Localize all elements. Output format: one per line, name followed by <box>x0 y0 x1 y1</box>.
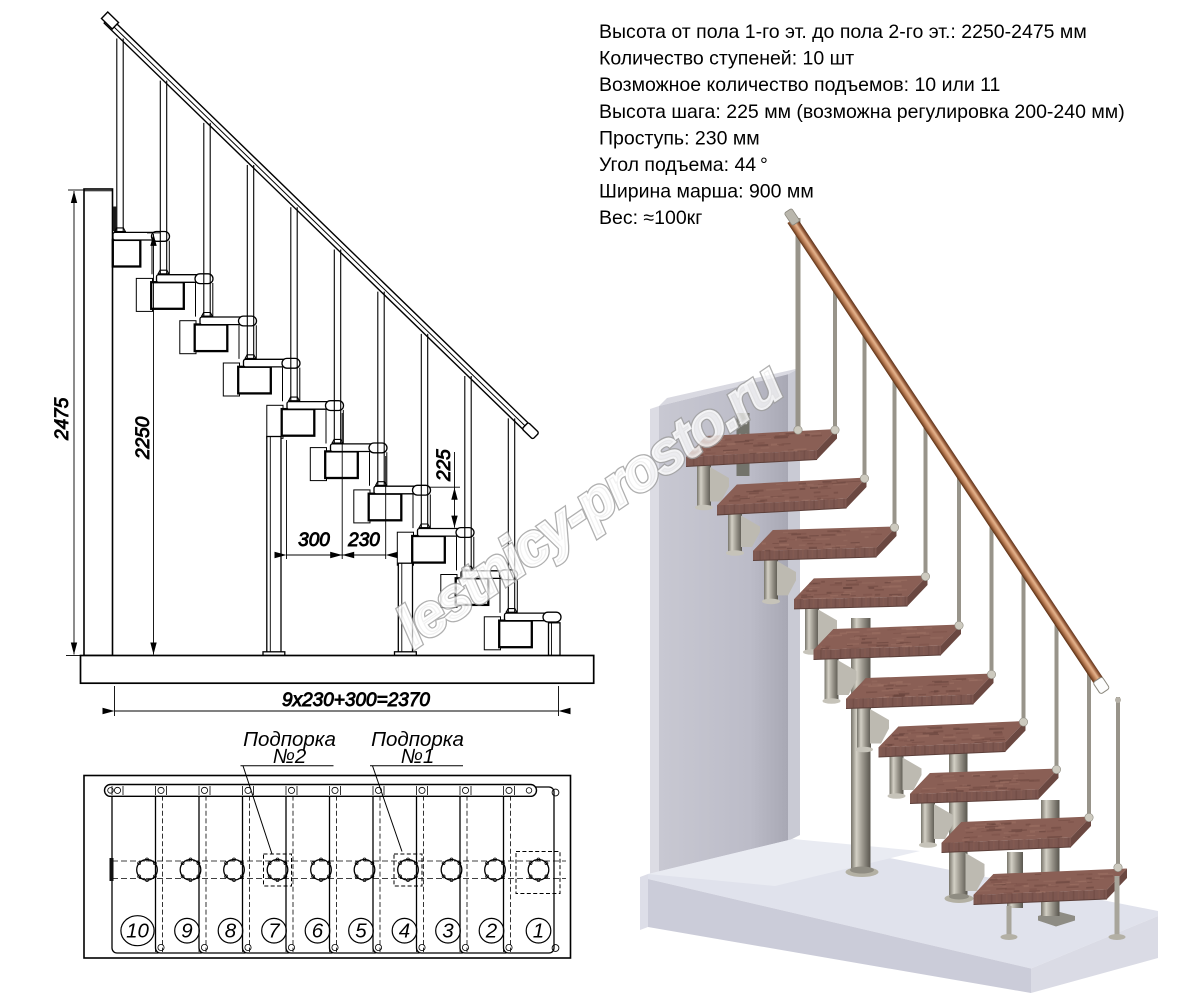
svg-text:2475: 2475 <box>52 397 73 441</box>
svg-text:1: 1 <box>533 920 544 943</box>
svg-text:3: 3 <box>442 920 454 943</box>
svg-text:225: 225 <box>434 449 455 482</box>
svg-text:Высота от пола 1-го эт. до пол: Высота от пола 1-го эт. до пола 2-го эт.… <box>599 21 1087 43</box>
svg-text:230: 230 <box>347 530 380 551</box>
svg-text:Ширина марша: 900 мм: Ширина марша: 900 мм <box>599 181 814 203</box>
svg-text:300: 300 <box>298 530 330 551</box>
svg-text:6: 6 <box>312 920 324 943</box>
svg-text:10: 10 <box>126 920 149 943</box>
svg-text:5: 5 <box>355 920 367 943</box>
svg-text:№1: №1 <box>401 745 435 768</box>
svg-text:№2: №2 <box>273 745 307 768</box>
svg-text:7: 7 <box>268 920 281 943</box>
svg-text:2: 2 <box>485 920 498 943</box>
svg-text:Угол подъема: 44 °: Угол подъема: 44 ° <box>599 154 768 176</box>
svg-text:8: 8 <box>225 920 237 943</box>
svg-text:Количество ступеней: 10 шт: Количество ступеней: 10 шт <box>599 48 854 70</box>
svg-text:Вес: ≈100кг: Вес: ≈100кг <box>599 207 702 229</box>
svg-text:Проступь: 230 мм: Проступь: 230 мм <box>599 127 760 149</box>
svg-text:4: 4 <box>399 920 410 943</box>
svg-text:2250: 2250 <box>133 416 154 460</box>
svg-text:9: 9 <box>181 920 192 943</box>
svg-text:9x230+300=2370: 9x230+300=2370 <box>282 690 430 711</box>
svg-text:Высота шага: 225 мм (возможна: Высота шага: 225 мм (возможна регулировк… <box>599 101 1125 123</box>
svg-text:Возможное количество подъемов:: Возможное количество подъемов: 10 или 11 <box>599 74 1000 96</box>
